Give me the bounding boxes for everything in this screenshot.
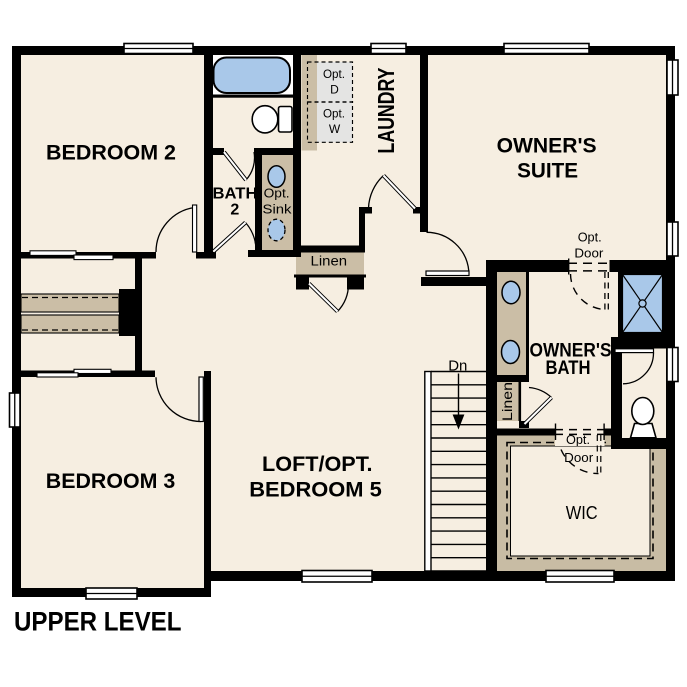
svg-text:Opt.: Opt.: [323, 67, 345, 81]
svg-text:LOFT/OPT.: LOFT/OPT.: [262, 453, 373, 476]
svg-text:W: W: [329, 122, 341, 136]
svg-text:Dn: Dn: [448, 358, 467, 375]
svg-text:Sink: Sink: [263, 202, 293, 217]
svg-text:Door: Door: [574, 246, 604, 261]
svg-text:LAUNDRY: LAUNDRY: [373, 68, 399, 154]
svg-text:BEDROOM 2: BEDROOM 2: [46, 142, 176, 165]
svg-text:Linen: Linen: [499, 382, 515, 421]
svg-text:Linen: Linen: [311, 253, 348, 269]
svg-text:Door: Door: [564, 450, 594, 465]
svg-text:BEDROOM 5: BEDROOM 5: [249, 478, 382, 501]
svg-text:BATH: BATH: [213, 186, 258, 203]
svg-text:Opt.: Opt.: [566, 432, 590, 447]
svg-text:UPPER LEVEL: UPPER LEVEL: [14, 607, 182, 637]
svg-text:BATH: BATH: [546, 358, 591, 379]
svg-text:D: D: [330, 83, 339, 97]
svg-text:Opt.: Opt.: [264, 185, 290, 200]
svg-text:OWNER'S: OWNER'S: [497, 134, 597, 157]
svg-text:SUITE: SUITE: [517, 159, 578, 182]
svg-text:Opt.: Opt.: [323, 106, 345, 120]
svg-text:2: 2: [230, 202, 239, 219]
svg-text:WIC: WIC: [566, 502, 598, 523]
svg-text:BEDROOM 3: BEDROOM 3: [46, 470, 176, 493]
svg-text:Opt.: Opt.: [578, 230, 602, 245]
